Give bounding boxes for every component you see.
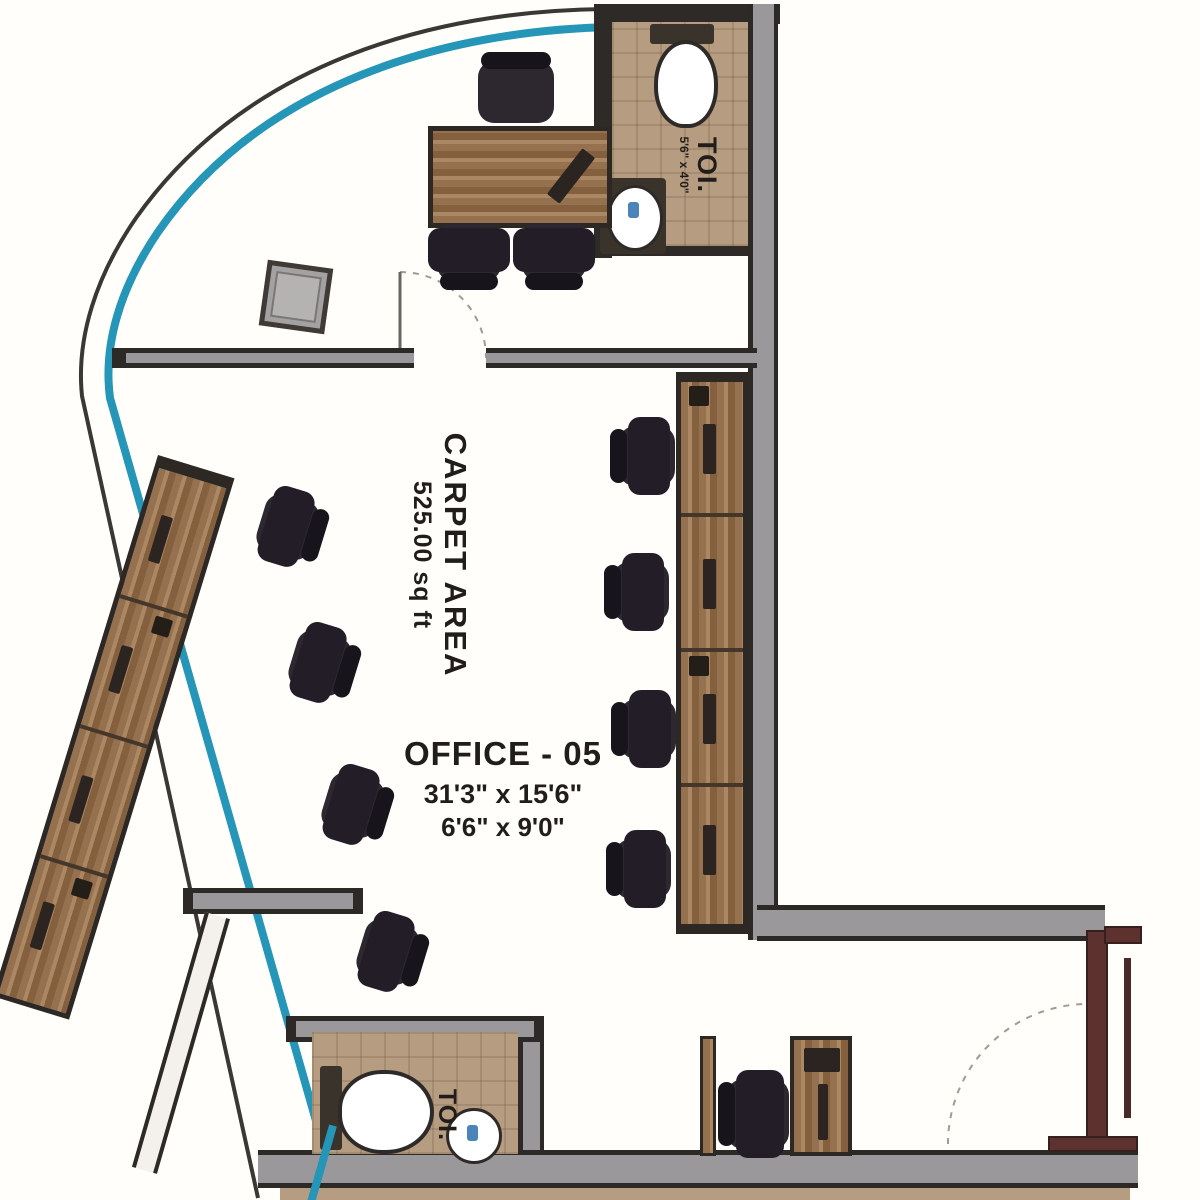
office-chair-right-4: [615, 839, 671, 899]
printer-table: [259, 260, 334, 335]
bottom-exterior-floor-strip: [280, 1188, 1130, 1200]
laptop-icon: [547, 148, 595, 204]
room-dimensions-1: 31'3" x 15'6": [368, 778, 638, 810]
bottom-right-vertical-wall: [1086, 930, 1108, 1148]
room-door-swing-arc: [948, 1004, 1088, 1144]
desk-bank-right: [676, 372, 748, 934]
right-window-panel: [1124, 958, 1131, 1118]
room-title-block: OFFICE - 05 31'3" x 15'6" 6'6" x 9'0": [368, 734, 638, 843]
office-chair-right-1: [619, 426, 675, 486]
guest-chair-2: [522, 223, 586, 281]
right-wall-stub-lower: [1048, 1136, 1138, 1152]
washbasin-icon: [607, 185, 663, 251]
floor-plan: TOI. 5'6" x 4'0" TOI.: [0, 0, 1200, 1200]
toilet-bottom-right-wall: [518, 1042, 544, 1160]
manager-desk: [428, 126, 612, 228]
interior-wall-right: [486, 348, 757, 368]
bottom-room-side-panel: [700, 1036, 716, 1156]
interior-wall-left: [112, 348, 414, 368]
carpet-area-value: 525.00 sq ft: [407, 385, 437, 725]
toilet-bottom-label: TOI.: [432, 1060, 462, 1170]
toilet-top-dimensions: 5'6" x 4'0": [676, 90, 690, 240]
bottom-right-top-wall: [757, 905, 1105, 941]
office-chair-right-2: [613, 562, 669, 622]
carpet-area-label: CARPET AREA: [437, 385, 474, 725]
left-wall-stub: [183, 888, 363, 914]
workstation-desk-7: [681, 652, 743, 787]
toilet-bowl-bottom-icon: [338, 1070, 434, 1154]
workstation-desk-6: [681, 517, 743, 652]
workstation-desk-5: [681, 382, 743, 517]
toilet-top-label: TOI.: [691, 90, 723, 240]
bottom-outer-wall: [258, 1150, 1138, 1188]
room-title: OFFICE - 05: [368, 734, 638, 774]
bottom-room-chair: [727, 1079, 789, 1149]
bottom-room-desk: [790, 1036, 852, 1156]
room-dimensions-2: 6'6" x 9'0": [368, 812, 638, 843]
carpet-area-block: CARPET AREA 525.00 sq ft: [396, 385, 474, 725]
workstation-desk-8: [681, 787, 743, 914]
manager-chair: [478, 61, 554, 123]
printer-table-top: [270, 271, 322, 323]
right-wall: [748, 4, 778, 940]
guest-chair-1: [437, 223, 501, 281]
toilet-bottom-label-block: TOI.: [432, 1060, 462, 1170]
toilet-top-label-block: TOI. 5'6" x 4'0": [677, 90, 723, 240]
right-wall-stub-upper: [1104, 926, 1142, 944]
